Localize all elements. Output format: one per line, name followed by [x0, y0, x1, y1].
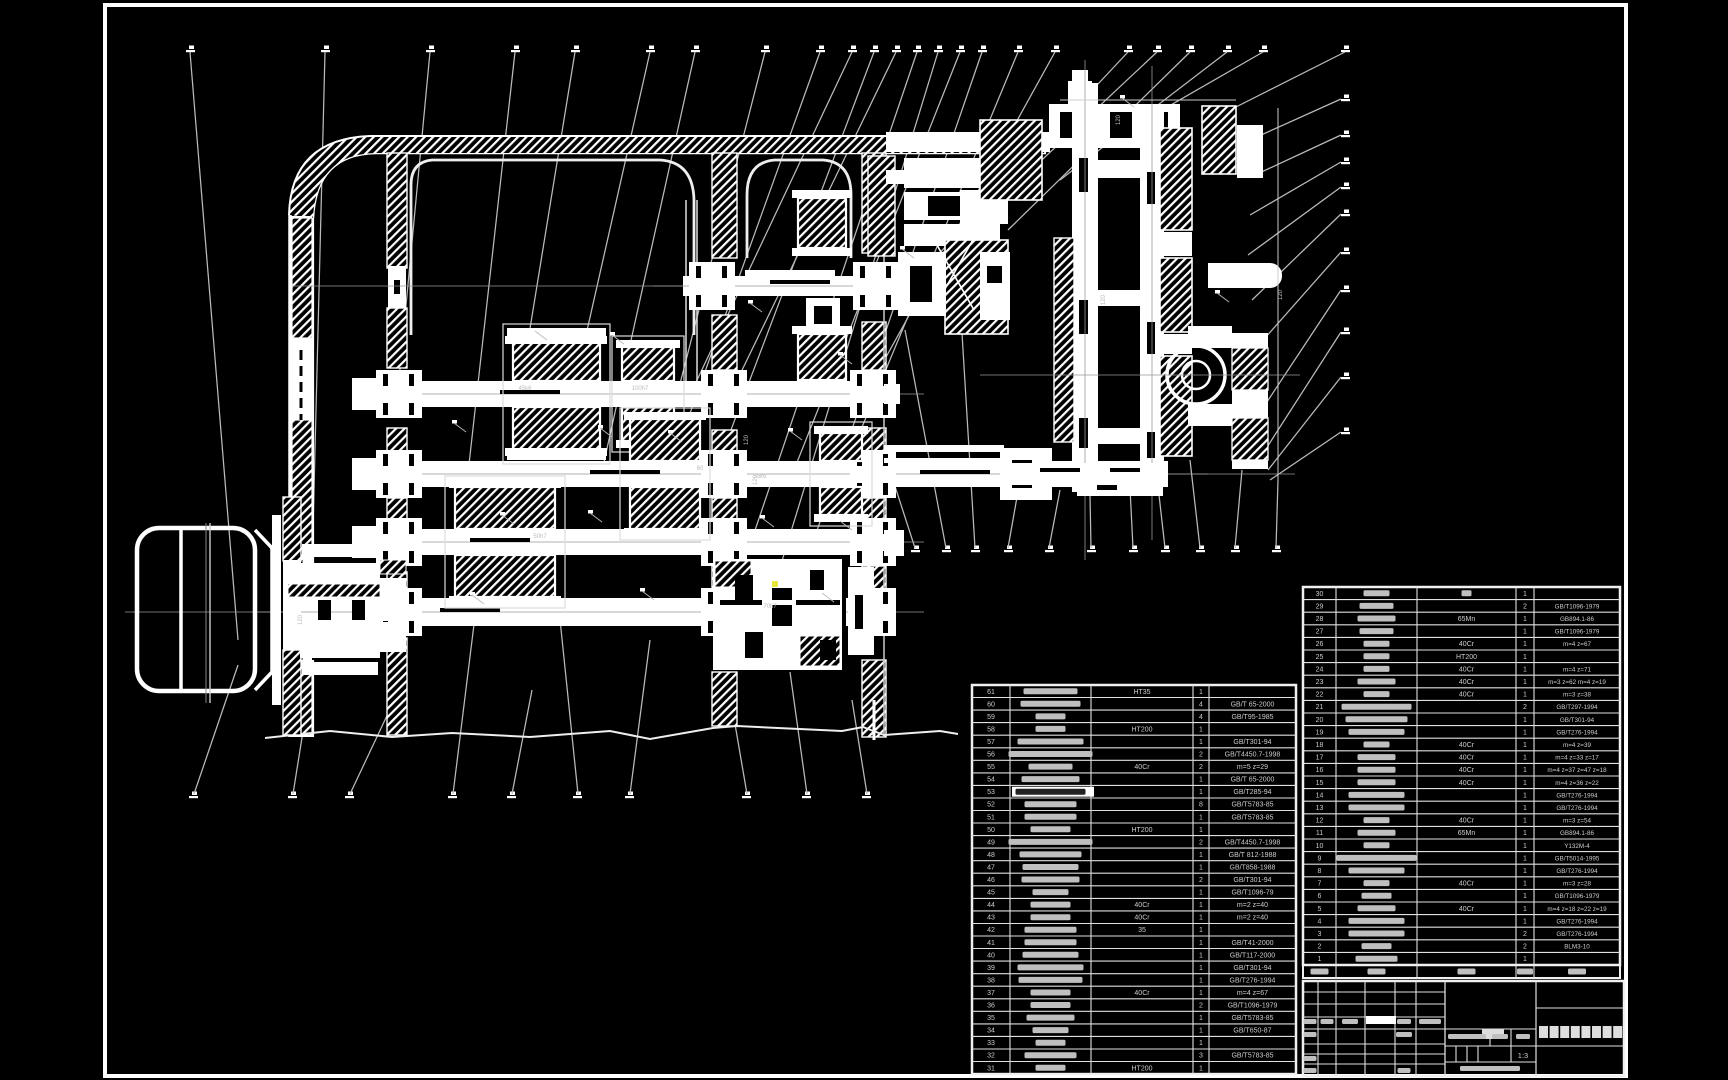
svg-text:GB/T117-2000: GB/T117-2000: [1230, 952, 1276, 959]
svg-text:47: 47: [987, 865, 995, 872]
svg-text:65Mn: 65Mn: [1458, 830, 1476, 837]
svg-text:3: 3: [1199, 1053, 1203, 1060]
svg-text:GB/T1096-1979: GB/T1096-1979: [1555, 629, 1600, 636]
svg-text:GB894.1-86: GB894.1-86: [1560, 616, 1594, 623]
svg-text:1:3: 1:3: [1518, 1051, 1528, 1060]
svg-text:33: 33: [987, 1040, 995, 1047]
svg-text:24: 24: [1316, 666, 1324, 673]
svg-text:1: 1: [1199, 689, 1203, 696]
svg-text:GB/T276-1994: GB/T276-1994: [1556, 729, 1598, 736]
svg-text:1: 1: [1523, 906, 1527, 913]
svg-text:1: 1: [1199, 852, 1203, 859]
svg-text:GB/T 812-1988: GB/T 812-1988: [1229, 852, 1277, 859]
svg-text:42: 42: [987, 927, 995, 934]
svg-text:26: 26: [1316, 641, 1324, 648]
svg-text:40Cr: 40Cr: [1459, 906, 1475, 913]
svg-text:1: 1: [1523, 666, 1527, 673]
svg-text:1: 1: [1523, 792, 1527, 799]
svg-text:43: 43: [987, 915, 995, 922]
svg-text:1: 1: [1199, 927, 1203, 934]
svg-text:GB/T1096-1979: GB/T1096-1979: [1228, 1003, 1278, 1010]
svg-text:m=4 z=33 z=17: m=4 z=33 z=17: [1555, 755, 1599, 762]
svg-text:GB/T1096-79: GB/T1096-79: [1231, 890, 1273, 897]
svg-text:1: 1: [1199, 739, 1203, 746]
svg-text:1: 1: [1523, 918, 1527, 925]
svg-text:46: 46: [987, 877, 995, 884]
svg-text:27: 27: [1316, 629, 1324, 636]
svg-text:GB/T 65-2000: GB/T 65-2000: [1231, 701, 1275, 708]
svg-text:GB/T858-1988: GB/T858-1988: [1230, 865, 1276, 872]
svg-text:40Cr: 40Cr: [1459, 755, 1475, 762]
svg-text:GB/T276-1994: GB/T276-1994: [1556, 805, 1598, 812]
svg-text:52: 52: [987, 802, 995, 809]
svg-text:GB/T301-94: GB/T301-94: [1560, 717, 1595, 724]
svg-text:m=3 z=28: m=3 z=28: [1563, 881, 1592, 888]
svg-text:1: 1: [1199, 1040, 1203, 1047]
svg-text:2: 2: [1318, 944, 1322, 951]
svg-text:1: 1: [1523, 843, 1527, 850]
svg-text:HT200: HT200: [1131, 1065, 1152, 1072]
svg-text:58: 58: [987, 726, 995, 733]
svg-text:60: 60: [987, 701, 995, 708]
svg-text:1: 1: [1523, 591, 1527, 598]
svg-text:23: 23: [1316, 679, 1324, 686]
svg-text:65Mn: 65Mn: [1458, 616, 1476, 623]
svg-text:40Cr: 40Cr: [1459, 742, 1475, 749]
svg-text:GB/T4450.7-1998: GB/T4450.7-1998: [1225, 839, 1281, 846]
svg-text:40Cr: 40Cr: [1459, 692, 1475, 699]
svg-text:GB894.1-86: GB894.1-86: [1560, 830, 1594, 837]
svg-text:1: 1: [1199, 915, 1203, 922]
svg-text:GB/T276-1994: GB/T276-1994: [1556, 931, 1598, 938]
svg-text:53: 53: [987, 789, 995, 796]
svg-text:GB/T95-1985: GB/T95-1985: [1231, 714, 1273, 721]
svg-text:50: 50: [987, 827, 995, 834]
svg-text:1: 1: [1523, 818, 1527, 825]
svg-text:40Cr: 40Cr: [1459, 780, 1475, 787]
svg-text:22: 22: [1316, 692, 1324, 699]
svg-text:1: 1: [1199, 1065, 1203, 1072]
svg-text:1: 1: [1199, 789, 1203, 796]
svg-text:2: 2: [1199, 752, 1203, 759]
svg-text:1: 1: [1523, 780, 1527, 787]
svg-text:45: 45: [987, 890, 995, 897]
svg-text:1: 1: [1523, 868, 1527, 875]
svg-text:29: 29: [1316, 603, 1324, 610]
svg-text:59: 59: [987, 714, 995, 721]
svg-text:36: 36: [987, 1003, 995, 1010]
svg-text:Y132M-4: Y132M-4: [1564, 843, 1590, 850]
svg-text:1: 1: [1523, 881, 1527, 888]
svg-text:GB/T276-1994: GB/T276-1994: [1556, 868, 1598, 875]
svg-text:m=4 z=71: m=4 z=71: [1563, 666, 1592, 673]
svg-text:1: 1: [1523, 679, 1527, 686]
svg-text:1: 1: [1523, 654, 1527, 661]
svg-text:m=3 z=38: m=3 z=38: [1563, 692, 1592, 699]
svg-text:41: 41: [987, 940, 995, 947]
svg-text:51: 51: [987, 814, 995, 821]
svg-text:GB/T301-94: GB/T301-94: [1233, 739, 1271, 746]
svg-text:GB/T5783-85: GB/T5783-85: [1231, 1053, 1273, 1060]
svg-text:m=3 z=54: m=3 z=54: [1563, 818, 1592, 825]
svg-text:HT200: HT200: [1131, 726, 1152, 733]
svg-text:1: 1: [1318, 956, 1322, 963]
svg-text:1: 1: [1523, 641, 1527, 648]
svg-text:GB/T285-94: GB/T285-94: [1233, 789, 1271, 796]
svg-text:m=4 z=67: m=4 z=67: [1237, 990, 1268, 997]
svg-text:1: 1: [1523, 755, 1527, 762]
svg-text:2: 2: [1523, 944, 1527, 951]
svg-text:GB/T41-2000: GB/T41-2000: [1231, 940, 1273, 947]
svg-text:40Cr: 40Cr: [1459, 679, 1475, 686]
svg-text:GB/T5783-85: GB/T5783-85: [1231, 814, 1273, 821]
svg-text:37: 37: [987, 990, 995, 997]
svg-text:m=3 z=62 m=4 z=19: m=3 z=62 m=4 z=19: [1548, 679, 1606, 686]
svg-text:1: 1: [1199, 777, 1203, 784]
svg-text:1: 1: [1523, 616, 1527, 623]
svg-text:70h7: 70h7: [763, 604, 777, 610]
svg-text:40Cr: 40Cr: [1134, 902, 1150, 909]
svg-text:18: 18: [1316, 742, 1324, 749]
svg-text:44: 44: [987, 902, 995, 909]
svg-text:GB/T5783-85: GB/T5783-85: [1231, 1015, 1273, 1022]
svg-text:4: 4: [1199, 701, 1203, 708]
svg-text:28: 28: [1316, 616, 1324, 623]
svg-text:1: 1: [1523, 692, 1527, 699]
svg-text:m=2 z=40: m=2 z=40: [1237, 915, 1268, 922]
svg-text:16: 16: [1316, 767, 1324, 774]
svg-text:19: 19: [1316, 729, 1324, 736]
svg-text:GB/T297-1994: GB/T297-1994: [1556, 704, 1598, 711]
svg-text:GB/T301-94: GB/T301-94: [1233, 965, 1271, 972]
svg-text:1: 1: [1199, 726, 1203, 733]
svg-text:m=4 z=18 z=22 z=19: m=4 z=18 z=22 z=19: [1547, 906, 1607, 913]
svg-text:GB/T 65-2000: GB/T 65-2000: [1231, 777, 1275, 784]
svg-text:GB/T1096-1979: GB/T1096-1979: [1555, 893, 1600, 900]
svg-text:35: 35: [987, 1015, 995, 1022]
svg-text:1: 1: [1199, 1015, 1203, 1022]
svg-text:21: 21: [1316, 704, 1324, 711]
svg-text:17: 17: [1316, 755, 1324, 762]
svg-text:8: 8: [1199, 802, 1203, 809]
svg-text:34: 34: [987, 1028, 995, 1035]
svg-text:9: 9: [1318, 855, 1322, 862]
svg-text:2: 2: [1199, 764, 1203, 771]
svg-text:15: 15: [1316, 780, 1324, 787]
svg-text:m=4 z=39: m=4 z=39: [1563, 742, 1592, 749]
svg-text:30: 30: [1316, 591, 1324, 598]
svg-text:2: 2: [1199, 877, 1203, 884]
svg-text:m=4 z=37 z=47 z=18: m=4 z=37 z=47 z=18: [1547, 767, 1607, 774]
svg-text:48: 48: [987, 852, 995, 859]
svg-text:40: 40: [987, 952, 995, 959]
svg-text:1: 1: [1523, 717, 1527, 724]
svg-text:39: 39: [987, 965, 995, 972]
svg-text:120: 120: [744, 434, 750, 445]
svg-text:m=4 z=36 z=22: m=4 z=36 z=22: [1555, 780, 1599, 787]
svg-text:1: 1: [1523, 956, 1527, 963]
svg-text:120: 120: [298, 614, 304, 625]
svg-text:40Cr: 40Cr: [1459, 767, 1475, 774]
svg-text:1: 1: [1199, 977, 1203, 984]
svg-text:1: 1: [1523, 855, 1527, 862]
svg-text:6: 6: [1318, 893, 1322, 900]
svg-text:HT200: HT200: [1131, 827, 1152, 834]
svg-text:3: 3: [1318, 931, 1322, 938]
svg-text:1: 1: [1523, 767, 1527, 774]
svg-text:GB/T650-87: GB/T650-87: [1233, 1028, 1271, 1035]
svg-text:12: 12: [1316, 818, 1324, 825]
svg-text:1: 1: [1199, 1028, 1203, 1035]
svg-text:61: 61: [987, 689, 995, 696]
svg-text:1: 1: [1523, 629, 1527, 636]
svg-text:50h7: 50h7: [533, 534, 547, 540]
svg-text:1: 1: [1199, 965, 1203, 972]
svg-text:GB/T276-1994: GB/T276-1994: [1230, 977, 1276, 984]
svg-text:120: 120: [1116, 114, 1122, 125]
svg-text:10: 10: [1316, 843, 1324, 850]
svg-text:7: 7: [1318, 881, 1322, 888]
svg-text:55: 55: [987, 764, 995, 771]
svg-text:BLM3-10: BLM3-10: [1564, 944, 1590, 951]
svg-text:1: 1: [1199, 902, 1203, 909]
svg-text:1: 1: [1523, 742, 1527, 749]
svg-text:1: 1: [1199, 940, 1203, 947]
svg-text:1: 1: [1523, 729, 1527, 736]
svg-text:1: 1: [1523, 805, 1527, 812]
svg-text:40Cr: 40Cr: [1134, 764, 1150, 771]
svg-text:4: 4: [1199, 714, 1203, 721]
svg-text:1: 1: [1199, 990, 1203, 997]
svg-text:20: 20: [1316, 717, 1324, 724]
svg-text:1: 1: [1199, 814, 1203, 821]
svg-text:54: 54: [987, 777, 995, 784]
svg-text:GB/T276-1994: GB/T276-1994: [1556, 918, 1598, 925]
svg-text:35: 35: [1138, 927, 1146, 934]
svg-text:2: 2: [1523, 704, 1527, 711]
svg-text:GB/T4450.7-1998: GB/T4450.7-1998: [1225, 752, 1281, 759]
svg-text:40Cr: 40Cr: [1459, 666, 1475, 673]
svg-text:120: 120: [1101, 294, 1107, 305]
svg-text:m=2 z=40: m=2 z=40: [1237, 902, 1268, 909]
svg-text:60: 60: [697, 466, 704, 472]
svg-text:40Cr: 40Cr: [1134, 990, 1150, 997]
svg-text:1: 1: [1199, 952, 1203, 959]
svg-text:38: 38: [987, 977, 995, 984]
svg-text:40Cr: 40Cr: [1459, 818, 1475, 825]
svg-text:2: 2: [1523, 931, 1527, 938]
svg-text:31: 31: [987, 1065, 995, 1072]
svg-text:13: 13: [1316, 805, 1324, 812]
svg-text:1: 1: [1199, 827, 1203, 834]
svg-text:40Cr: 40Cr: [1459, 881, 1475, 888]
svg-text:HT200: HT200: [1456, 654, 1477, 661]
svg-text:GB/T5014-1995: GB/T5014-1995: [1555, 855, 1600, 862]
svg-text:8: 8: [1318, 868, 1322, 875]
svg-text:40Cr: 40Cr: [1459, 641, 1475, 648]
svg-text:45k6: 45k6: [518, 386, 532, 392]
svg-text:32: 32: [987, 1053, 995, 1060]
svg-text:GB/T5783-85: GB/T5783-85: [1231, 802, 1273, 809]
svg-text:25: 25: [1316, 654, 1324, 661]
svg-text:GB/T301-94: GB/T301-94: [1233, 877, 1271, 884]
svg-text:m=4 z=67: m=4 z=67: [1563, 641, 1592, 648]
svg-text:49: 49: [987, 839, 995, 846]
svg-text:100h7: 100h7: [632, 386, 649, 392]
svg-text:m=5 z=29: m=5 z=29: [1237, 764, 1268, 771]
svg-text:2: 2: [1523, 603, 1527, 610]
svg-text:1: 1: [1523, 893, 1527, 900]
svg-text:5: 5: [1318, 906, 1322, 913]
svg-text:40Cr: 40Cr: [1134, 915, 1150, 922]
svg-text:120: 120: [753, 474, 759, 485]
svg-text:56: 56: [987, 752, 995, 759]
svg-text:1: 1: [1199, 865, 1203, 872]
svg-text:4: 4: [1318, 918, 1322, 925]
svg-text:2: 2: [1199, 839, 1203, 846]
svg-text:120: 120: [1278, 289, 1284, 300]
svg-text:14: 14: [1316, 792, 1324, 799]
svg-text:1: 1: [1523, 830, 1527, 837]
svg-text:HT35: HT35: [1133, 689, 1150, 696]
svg-text:GB/T276-1994: GB/T276-1994: [1556, 792, 1598, 799]
svg-text:1: 1: [1199, 890, 1203, 897]
svg-text:2: 2: [1199, 1003, 1203, 1010]
svg-text:GB/T1096-1979: GB/T1096-1979: [1555, 603, 1600, 610]
svg-text:11: 11: [1316, 830, 1323, 837]
svg-text:57: 57: [987, 739, 995, 746]
